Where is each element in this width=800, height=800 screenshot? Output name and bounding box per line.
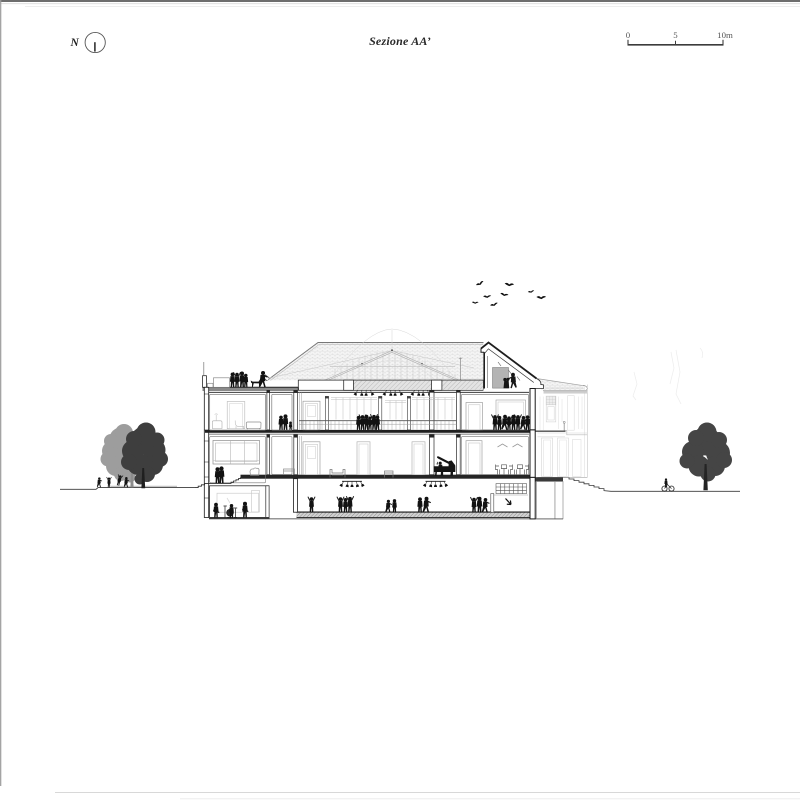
svg-text:5: 5 xyxy=(673,30,678,40)
svg-text:10m: 10m xyxy=(717,30,733,40)
svg-text:0: 0 xyxy=(626,30,631,40)
svg-text:N: N xyxy=(70,37,80,49)
svg-text:Sezione AA’: Sezione AA’ xyxy=(369,34,431,48)
